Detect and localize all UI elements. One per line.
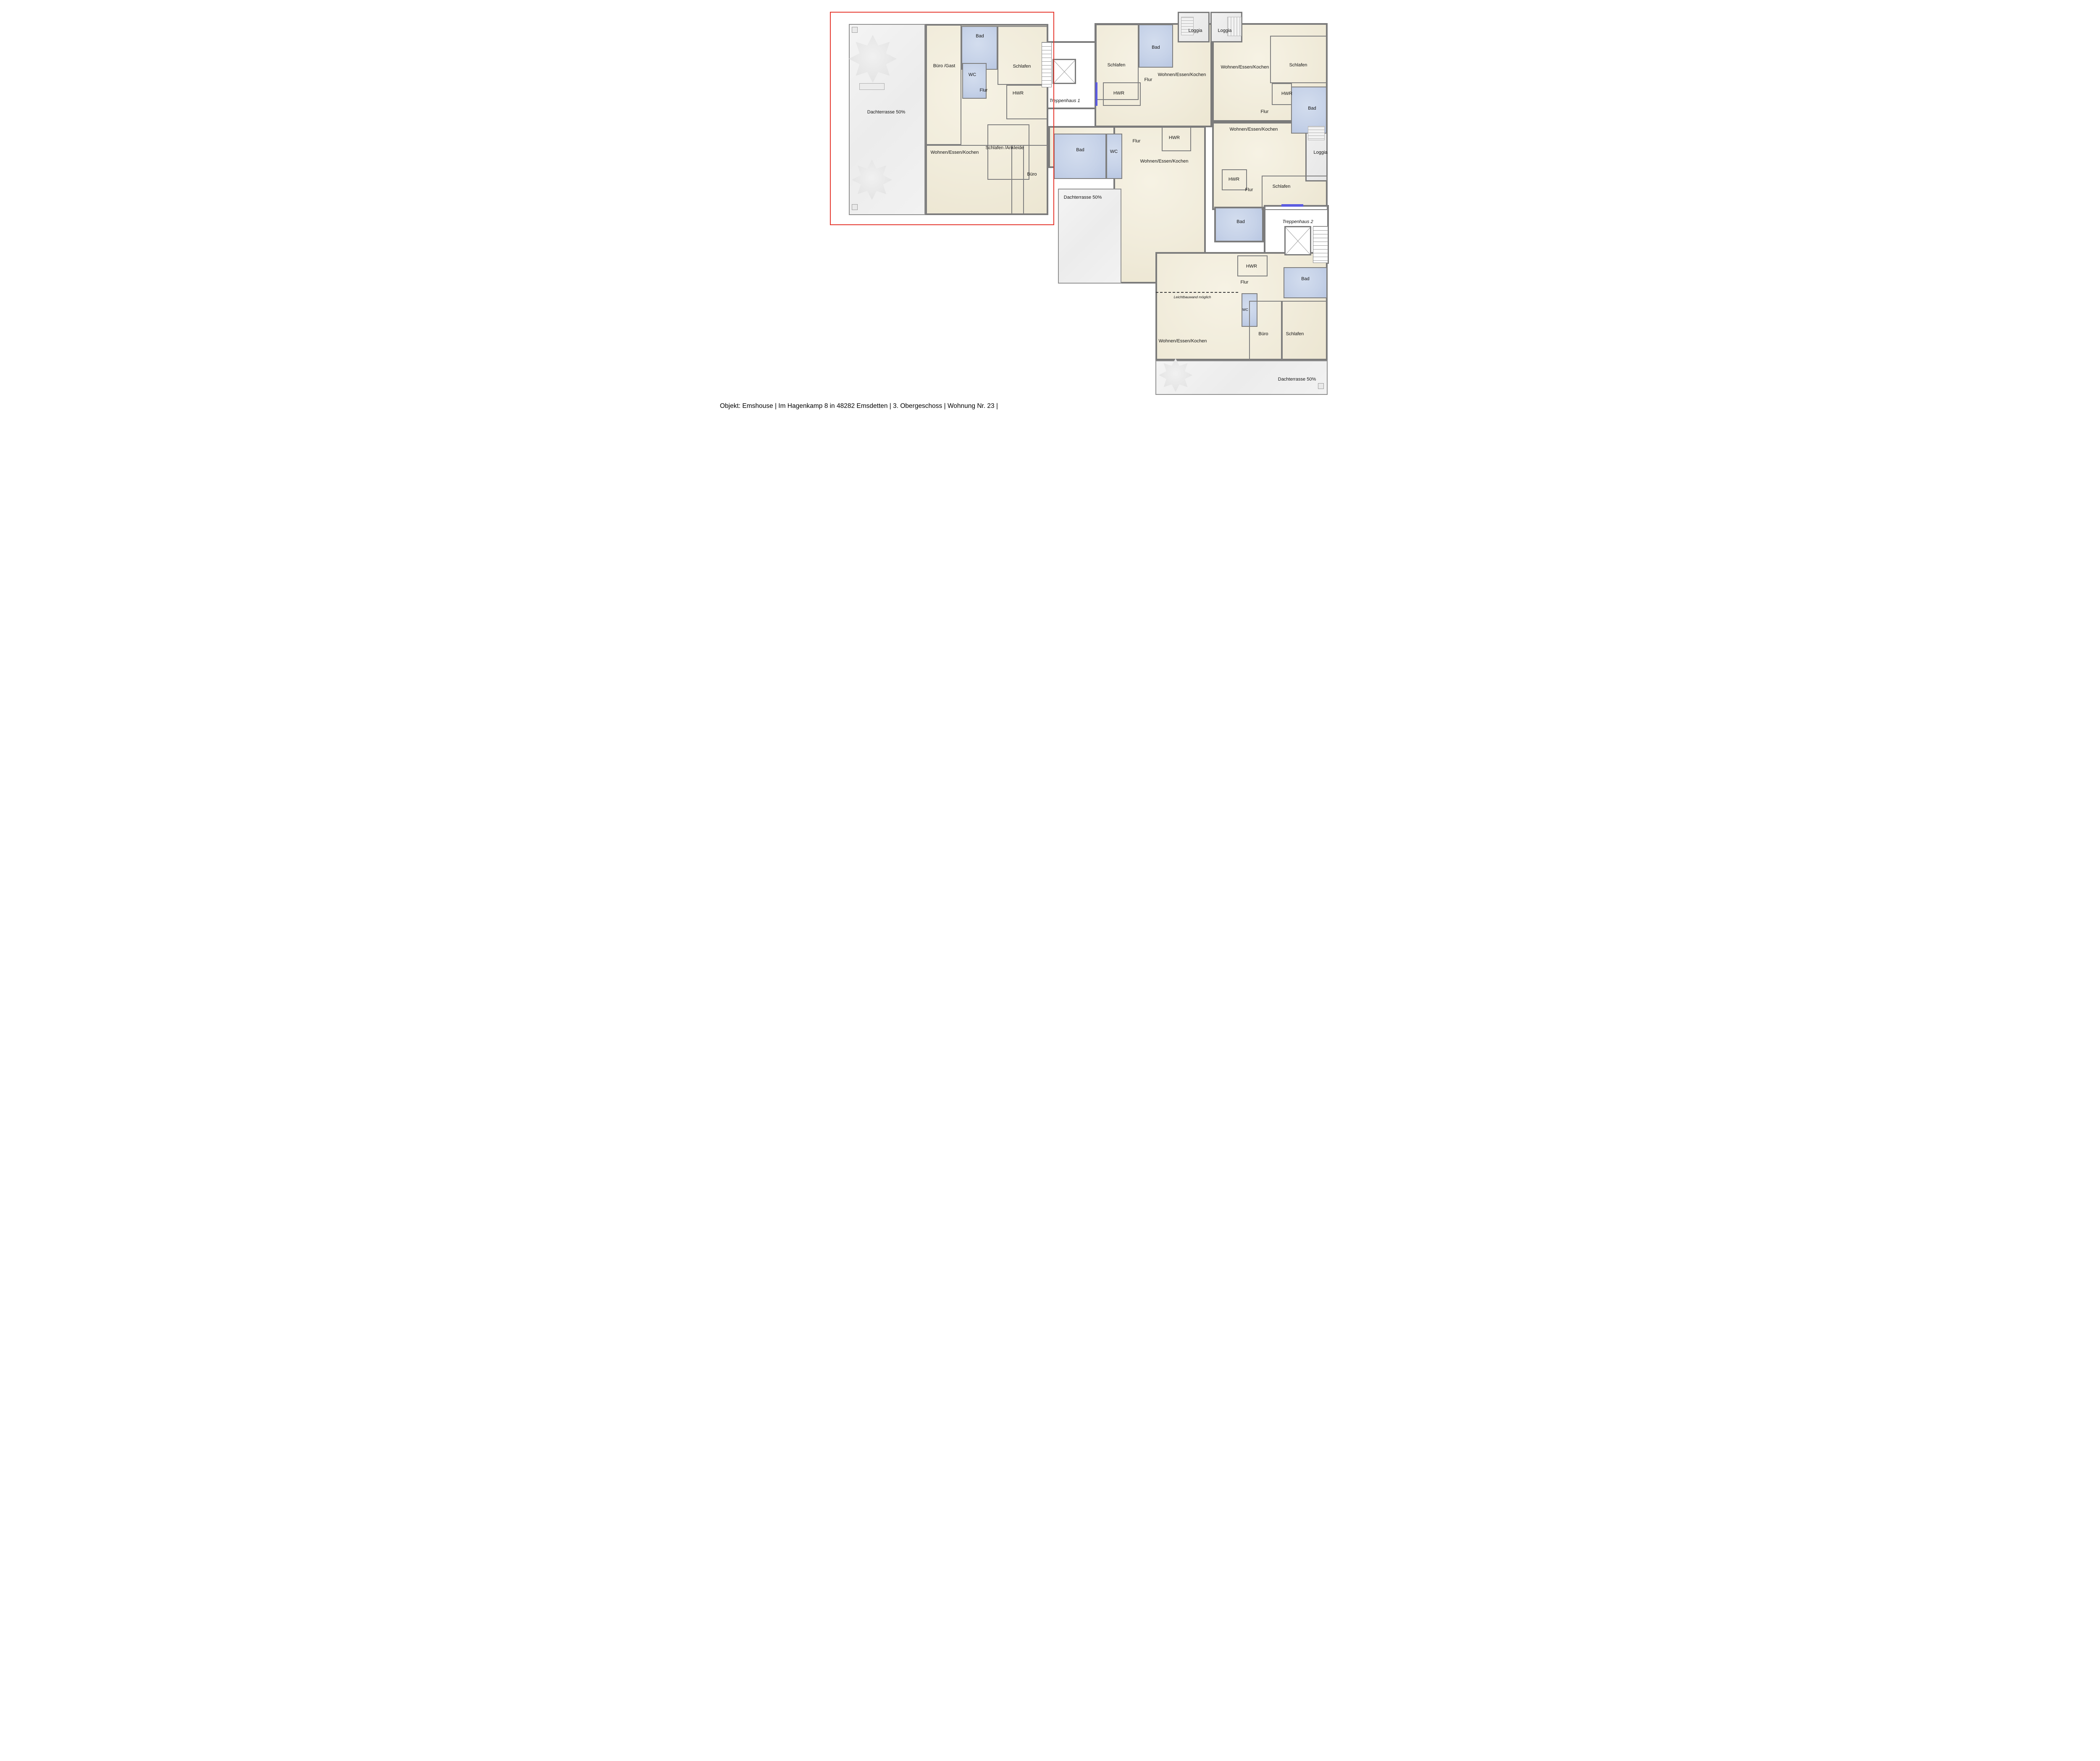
room-label: Flur bbox=[1245, 187, 1253, 192]
loggia-deck-3 bbox=[1308, 126, 1325, 140]
room-label: Loggia bbox=[1313, 150, 1327, 155]
room-label: Schlafen bbox=[1108, 63, 1126, 68]
c-bad bbox=[1054, 134, 1106, 179]
room-label: Bad bbox=[1236, 219, 1245, 224]
room-label: Flur bbox=[1133, 139, 1141, 144]
loggia-deck-2 bbox=[1227, 17, 1242, 36]
b-buero bbox=[1249, 301, 1282, 360]
marker-blue-h bbox=[1281, 204, 1303, 207]
room-label: Dachterrasse 50% bbox=[1064, 195, 1102, 200]
tr-schlafen bbox=[1270, 36, 1327, 83]
room-label: Wohnen/Essen/Kochen bbox=[1140, 159, 1189, 164]
room-label: Bad bbox=[1152, 45, 1160, 50]
room-label: Büro bbox=[1258, 331, 1268, 336]
room-label: Flur bbox=[1241, 280, 1249, 285]
room-label: HWR bbox=[1246, 264, 1257, 269]
room-label: Loggia bbox=[1218, 28, 1231, 33]
room-label: Wohnen/Essen/Kochen bbox=[1158, 72, 1206, 77]
room-label: HWR bbox=[1169, 135, 1180, 140]
room-label: Flur bbox=[1261, 109, 1269, 114]
floorplan: Büro /GastBadSchlafenWCFlurHWRDachterras… bbox=[717, 0, 1383, 430]
room-label: Flur bbox=[1144, 77, 1152, 82]
terrace-middle bbox=[1058, 189, 1121, 284]
elevator-2 bbox=[1284, 226, 1311, 255]
elevator-cross-line bbox=[1286, 226, 1311, 255]
elevator-cross-line bbox=[1054, 59, 1076, 83]
room-label: HWR bbox=[1228, 177, 1239, 182]
elevator-cross-line bbox=[1053, 60, 1076, 84]
b-schlafen bbox=[1282, 301, 1328, 360]
room-label: Bad bbox=[1308, 106, 1316, 111]
room-label: Bad bbox=[1076, 147, 1084, 152]
room-label: Bad bbox=[1301, 276, 1310, 281]
bath-central-shell bbox=[1214, 207, 1264, 242]
lightweight-wall bbox=[1156, 292, 1238, 293]
room-label: Wohnen/Essen/Kochen bbox=[1230, 127, 1278, 132]
room-label: HWR bbox=[1113, 91, 1124, 96]
caption: Objekt: Emshouse | Im Hagenkamp 8 in 482… bbox=[720, 402, 998, 410]
room-label: Wohnen/Essen/Kochen bbox=[1159, 339, 1207, 344]
stairs-2-treads bbox=[1313, 226, 1328, 263]
room-label: Wohnen/Essen/Kochen bbox=[1221, 65, 1269, 70]
room-label: Leichtbauwand möglich bbox=[1174, 295, 1211, 299]
room-label: Schlafen bbox=[1289, 63, 1307, 68]
room-label: HWR bbox=[1281, 91, 1292, 96]
b-bad bbox=[1284, 267, 1327, 298]
room-label: WC bbox=[1110, 149, 1118, 154]
room-label: Loggia bbox=[1188, 28, 1202, 33]
elevator-1 bbox=[1053, 59, 1076, 84]
marker-blue-v bbox=[1095, 82, 1097, 106]
floorplan-page: Büro /GastBadSchlafenWCFlurHWRDachterras… bbox=[717, 0, 1383, 430]
parasol-bottom bbox=[1159, 358, 1192, 392]
room-label: Dachterrasse 50% bbox=[1278, 377, 1316, 382]
room-label: Schlafen bbox=[1273, 184, 1291, 189]
wohnung-23-outline bbox=[830, 12, 1054, 225]
elevator-cross-line bbox=[1285, 227, 1311, 255]
room-label: Treppenhaus 2 bbox=[1282, 219, 1313, 224]
room-label: WC bbox=[1242, 308, 1248, 312]
terrace-light-3 bbox=[1318, 383, 1324, 389]
c-wc bbox=[1106, 134, 1122, 179]
room-label: Schlafen bbox=[1286, 331, 1304, 336]
